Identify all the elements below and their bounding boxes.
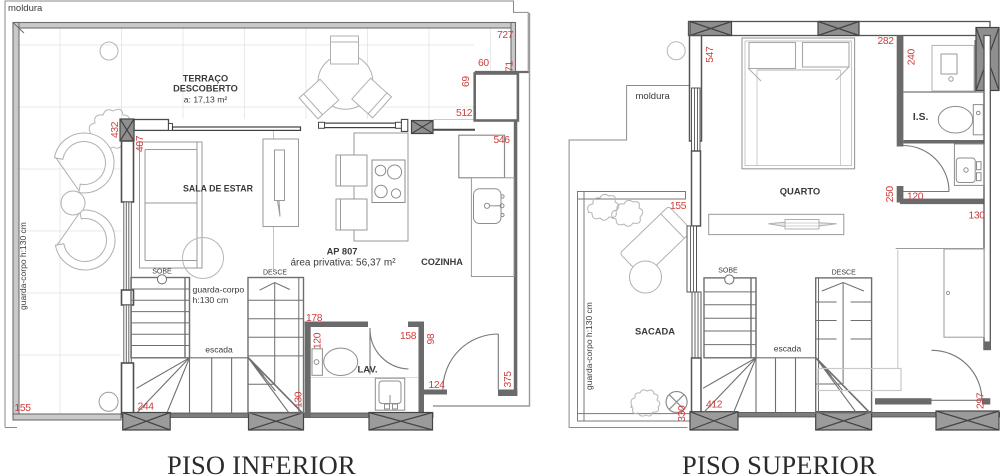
- svg-text:547: 547: [705, 46, 716, 63]
- svg-text:LAV.: LAV.: [358, 364, 378, 375]
- svg-text:244: 244: [138, 402, 155, 413]
- svg-text:guarda-corpo h:130 cm: guarda-corpo h:130 cm: [18, 222, 28, 310]
- svg-text:a: 17,13 m²: a: 17,13 m²: [184, 95, 228, 105]
- svg-text:PISO SUPERIOR: PISO SUPERIOR: [682, 450, 877, 476]
- svg-text:375: 375: [503, 371, 514, 388]
- svg-text:TERRAÇO: TERRAÇO: [183, 74, 228, 84]
- svg-text:QUARTO: QUARTO: [780, 186, 820, 197]
- svg-text:69: 69: [461, 76, 472, 87]
- svg-text:432: 432: [110, 121, 121, 138]
- svg-text:297: 297: [976, 392, 987, 409]
- svg-text:512: 512: [456, 108, 473, 119]
- svg-text:moldura: moldura: [636, 91, 671, 102]
- svg-text:escada: escada: [774, 344, 802, 354]
- svg-text:AP 807: AP 807: [327, 247, 358, 257]
- svg-text:moldura: moldura: [8, 3, 43, 14]
- svg-text:282: 282: [878, 36, 895, 47]
- svg-text:área privativa: 56,37 m²: área privativa: 56,37 m²: [290, 258, 396, 269]
- svg-text:71: 71: [505, 61, 516, 72]
- svg-text:PISO INFERIOR: PISO INFERIOR: [167, 450, 356, 476]
- svg-text:SOBE: SOBE: [718, 268, 738, 275]
- svg-text:412: 412: [706, 400, 723, 411]
- svg-text:I.S.: I.S.: [913, 112, 929, 123]
- svg-text:120: 120: [907, 192, 924, 203]
- svg-text:178: 178: [306, 313, 323, 324]
- svg-text:727: 727: [497, 30, 514, 41]
- svg-text:120: 120: [313, 332, 324, 349]
- svg-text:guarda-corpo h:130 cm: guarda-corpo h:130 cm: [584, 302, 594, 390]
- svg-text:330: 330: [677, 405, 688, 422]
- svg-text:COZINHA: COZINHA: [421, 257, 463, 267]
- svg-text:130: 130: [294, 391, 305, 408]
- svg-text:98: 98: [426, 333, 437, 344]
- svg-text:124: 124: [429, 380, 446, 391]
- svg-text:240: 240: [907, 49, 918, 66]
- svg-text:guarda-corpo: guarda-corpo: [193, 285, 245, 295]
- svg-text:60: 60: [478, 58, 489, 69]
- svg-text:158: 158: [400, 331, 417, 342]
- svg-text:130: 130: [969, 211, 986, 222]
- svg-text:546: 546: [494, 135, 511, 146]
- svg-text:407: 407: [135, 135, 146, 152]
- svg-text:SOBE: SOBE: [152, 269, 172, 276]
- svg-text:DESCE: DESCE: [832, 270, 856, 277]
- svg-text:h:130 cm: h:130 cm: [193, 295, 229, 305]
- svg-text:155: 155: [15, 403, 32, 414]
- svg-text:escada: escada: [205, 345, 233, 355]
- svg-text:155: 155: [670, 201, 687, 212]
- svg-text:250: 250: [885, 186, 896, 203]
- svg-text:DESCOBERTO: DESCOBERTO: [173, 84, 238, 94]
- svg-text:DESCE: DESCE: [263, 270, 287, 277]
- svg-text:SACADA: SACADA: [635, 326, 675, 337]
- svg-text:SALA DE ESTAR: SALA DE ESTAR: [183, 184, 254, 194]
